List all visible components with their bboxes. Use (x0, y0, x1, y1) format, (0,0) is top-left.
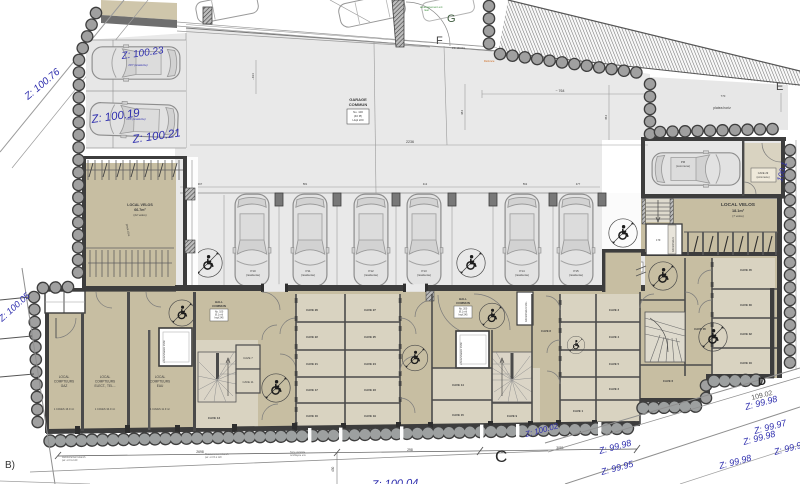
svg-text:CAVE 27: CAVE 27 (364, 308, 376, 312)
svg-text:CAVE 19: CAVE 19 (364, 414, 376, 418)
svg-text:COMPTEURS: COMPTEURS (54, 380, 74, 384)
svg-text:CAVE 4: CAVE 4 (609, 335, 620, 339)
svg-text:~494: ~494 (251, 73, 255, 80)
svg-text:1 CAVES 16.9 m²: 1 CAVES 16.9 m² (54, 407, 74, 411)
svg-text:(commune): (commune) (756, 175, 769, 179)
svg-text:179: 179 (656, 238, 661, 242)
svg-text:CAVE 45: CAVE 45 (740, 268, 752, 272)
svg-text:LOCAL: LOCAL (100, 375, 111, 379)
svg-text:~ 764: ~ 764 (555, 89, 564, 93)
svg-text:562: 562 (523, 182, 528, 186)
svg-text:CAVE 24: CAVE 24 (364, 362, 376, 366)
svg-text:P27 (résidente): P27 (résidente) (128, 63, 147, 67)
svg-text:CAVE 15: CAVE 15 (452, 413, 464, 417)
svg-text:CAVE 9: CAVE 9 (507, 414, 518, 418)
svg-text:CAVE 29: CAVE 29 (758, 171, 769, 175)
svg-text:CAVE 16: CAVE 16 (740, 361, 752, 365)
svg-text:(résidente): (résidente) (569, 273, 583, 277)
svg-text:CAVE 32: CAVE 32 (740, 332, 752, 336)
svg-text:Hspl 220: Hspl 220 (352, 118, 363, 122)
svg-text:CAVE 14: CAVE 14 (452, 383, 464, 387)
svg-text:ASCENSEUR MRL: ASCENSEUR MRL (525, 301, 528, 322)
svg-text:ELECT., TEL...: ELECT., TEL... (94, 384, 115, 388)
svg-text:CAVE 8: CAVE 8 (541, 329, 551, 333)
svg-text:CAVE 26: CAVE 26 (306, 308, 318, 312)
svg-text:ASCENSEUR: ASCENSEUR (672, 237, 675, 252)
svg-text:Z: 100.04: Z: 100.04 (371, 477, 419, 484)
svg-text:pér. ét 15 à 120: pér. ét 15 à 120 (205, 456, 222, 459)
svg-text:(résidente): (résidente) (301, 273, 315, 277)
svg-text:CAVE 5: CAVE 5 (609, 362, 620, 366)
svg-text:remblayée env.: remblayée env. (290, 454, 307, 457)
svg-text:LOCAL VELOS: LOCAL VELOS (721, 202, 756, 208)
svg-text:298: 298 (407, 448, 413, 452)
svg-text:(résidente): (résidente) (246, 273, 260, 277)
svg-text:CAVE 22: CAVE 22 (306, 335, 318, 339)
svg-text:484: 484 (460, 110, 464, 115)
svg-text:D: D (758, 376, 766, 388)
svg-text:hspl 245: hspl 245 (214, 317, 224, 320)
svg-text:CAVE 17: CAVE 17 (306, 388, 318, 392)
svg-text:430: 430 (331, 466, 335, 472)
svg-text:COMMUN: COMMUN (456, 301, 470, 305)
svg-text:C: C (495, 447, 507, 466)
svg-text:(résidente): (résidente) (364, 273, 378, 277)
svg-text:412: 412 (423, 182, 428, 186)
svg-text:18.1m²: 18.1m² (732, 209, 745, 213)
svg-text:COMPTEURS: COMPTEURS (150, 380, 170, 384)
svg-text:LOCAL VELOS: LOCAL VELOS (127, 203, 153, 207)
svg-text:PR 100 RG: PR 100 RG (452, 46, 465, 50)
svg-text:pér. ét 0 à 120: pér. ét 0 à 120 (62, 459, 78, 462)
svg-text:CAVE 7: CAVE 7 (243, 356, 253, 360)
svg-text:477: 477 (576, 182, 581, 186)
svg-text:CAVE 23: CAVE 23 (364, 388, 376, 392)
svg-text:ASCENSEUR PMR: ASCENSEUR PMR (162, 340, 166, 363)
svg-text:platea horiz: platea horiz (713, 106, 731, 110)
svg-text:CAVE 21: CAVE 21 (306, 362, 318, 366)
svg-text:66.7m²: 66.7m² (134, 208, 146, 212)
svg-text:1 CAVES 11.9 m²: 1 CAVES 11.9 m² (150, 407, 170, 411)
svg-text:(7 vélos): (7 vélos) (732, 214, 744, 218)
svg-text:CAVE 12: CAVE 12 (208, 416, 221, 420)
svg-text:COMMUN: COMMUN (349, 102, 368, 107)
svg-text:581: 581 (303, 182, 308, 186)
svg-text:(commune): (commune) (676, 164, 690, 168)
svg-text:E: E (776, 81, 783, 93)
svg-text:B): B) (5, 460, 15, 471)
svg-text:(22 vélos): (22 vélos) (133, 213, 146, 217)
svg-text:CAVE 3: CAVE 3 (609, 308, 620, 312)
svg-text:GAZ: GAZ (61, 384, 68, 388)
svg-text:2698: 2698 (196, 450, 204, 454)
svg-text:(résidente): (résidente) (515, 273, 529, 277)
svg-text:(résidente): (résidente) (417, 273, 431, 277)
svg-text:EAU: EAU (157, 384, 164, 388)
svg-text:CAVE 30: CAVE 30 (740, 303, 752, 307)
svg-text:réal: réal (424, 8, 429, 12)
svg-text:F: F (436, 35, 443, 47)
svg-text:ASCENSEUR PMR: ASCENSEUR PMR (459, 342, 463, 365)
svg-text:hspl 245: hspl 245 (458, 314, 468, 317)
svg-text:454: 454 (604, 115, 608, 120)
svg-text:2236: 2236 (406, 140, 414, 144)
svg-text:CAVE 11: CAVE 11 (242, 380, 254, 384)
svg-text:CAVE 16: CAVE 16 (306, 414, 318, 418)
svg-text:G: G (447, 13, 456, 25)
svg-text:Défonce: Défonce (484, 59, 495, 63)
svg-text:COMMUN: COMMUN (212, 304, 226, 308)
svg-text:CAVE 6: CAVE 6 (663, 379, 674, 383)
svg-text:LOCAL: LOCAL (59, 375, 70, 379)
svg-text:CAVE 1: CAVE 1 (573, 409, 584, 413)
svg-text:COMPTEURS: COMPTEURS (95, 380, 115, 384)
svg-text:CAVE 25: CAVE 25 (364, 335, 376, 339)
svg-text:770: 770 (721, 94, 726, 98)
svg-text:467: 467 (198, 182, 203, 186)
svg-text:1 CAVES 34.9 m²: 1 CAVES 34.9 m² (95, 407, 115, 411)
svg-text:CAVE 2: CAVE 2 (609, 387, 620, 391)
svg-text:LOCAL: LOCAL (155, 375, 166, 379)
